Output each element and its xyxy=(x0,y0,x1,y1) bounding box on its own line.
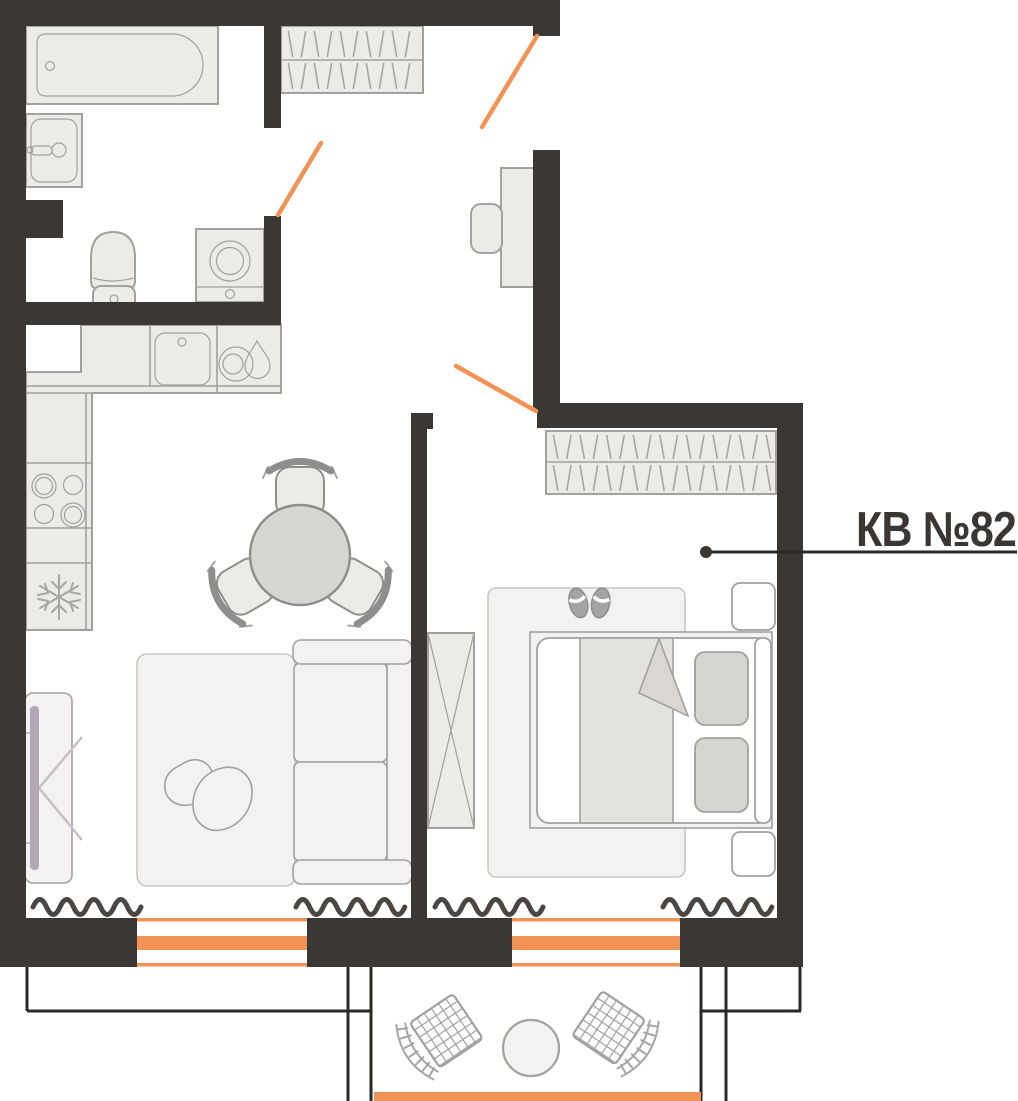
bathroom-wall xyxy=(264,216,281,303)
bed-pillow xyxy=(695,652,748,725)
wall-left xyxy=(0,0,26,920)
bathroom-bottom-wall xyxy=(0,302,281,325)
wall-right xyxy=(777,403,803,967)
partition-wall xyxy=(411,413,427,918)
sofa xyxy=(293,640,412,884)
nightstand xyxy=(732,583,775,630)
bed-pillow xyxy=(695,738,748,812)
tv-icon xyxy=(30,706,39,870)
leader-dot xyxy=(700,546,712,558)
tv-stand xyxy=(25,693,82,883)
door-swing-bathroom xyxy=(278,143,321,215)
partition-cap xyxy=(411,413,433,429)
duct-block xyxy=(26,200,63,238)
radiator-wave-icon xyxy=(663,900,772,915)
radiator-wave-icon xyxy=(435,900,543,915)
bathroom-wall xyxy=(264,0,281,128)
wall-bottom-left xyxy=(0,918,137,967)
door-swing-bedroom xyxy=(456,366,536,411)
floorplan-canvas: КВ №82 xyxy=(0,0,1018,1101)
balcony-table xyxy=(503,1020,559,1076)
bedroom-top-wall xyxy=(537,403,803,428)
toilet xyxy=(91,232,135,312)
radiator-wave-icon xyxy=(33,900,141,915)
door-swing-entry xyxy=(482,36,537,127)
entry-console xyxy=(501,168,534,287)
nightstand xyxy=(732,832,775,876)
wall-bottom-right xyxy=(680,918,803,967)
bed xyxy=(530,632,772,828)
window-bedroom xyxy=(512,918,680,967)
bath-sink xyxy=(26,114,82,187)
wall-bottom-mid xyxy=(307,918,512,967)
balcony-outline xyxy=(27,967,801,1101)
window-living xyxy=(137,918,307,967)
headboard xyxy=(755,638,771,823)
apartment-label[interactable]: КВ №82 xyxy=(856,503,1016,557)
bathtub xyxy=(26,26,218,104)
balcony-glazing xyxy=(374,1092,701,1101)
washing-machine xyxy=(196,229,264,302)
x-wardrobe xyxy=(428,633,474,828)
balcony-chair xyxy=(569,986,666,1082)
entry-pouf xyxy=(471,204,502,253)
radiator-wave-icon xyxy=(296,900,405,915)
bedroom-wardrobe xyxy=(546,431,776,494)
dining-table xyxy=(250,505,350,605)
hall-right-wall xyxy=(533,150,560,412)
entry-door-post xyxy=(533,0,560,36)
hall-wardrobe xyxy=(281,26,423,93)
balcony-chair xyxy=(389,989,486,1085)
